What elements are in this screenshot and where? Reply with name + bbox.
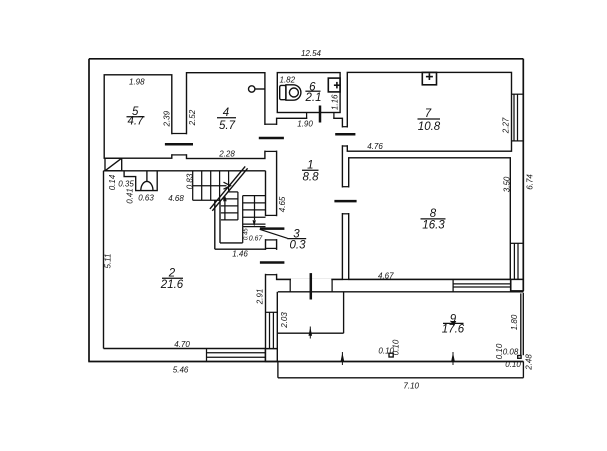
svg-text:5.46: 5.46 [173,365,189,374]
svg-text:0.63: 0.63 [138,193,154,202]
svg-text:2.52: 2.52 [188,109,197,126]
svg-text:8: 8 [430,208,437,220]
svg-text:0.67: 0.67 [249,235,264,242]
svg-text:4.70: 4.70 [174,340,190,349]
svg-text:2.03: 2.03 [280,312,289,329]
svg-text:3: 3 [293,228,300,240]
svg-text:21.6: 21.6 [160,279,184,291]
svg-text:1.46: 1.46 [232,250,248,259]
svg-text:0.83: 0.83 [186,173,195,189]
svg-text:1.82: 1.82 [280,76,296,85]
svg-text:0.08: 0.08 [503,347,519,356]
svg-text:1.80: 1.80 [510,314,519,330]
svg-text:4.67: 4.67 [378,271,394,280]
svg-text:8.8: 8.8 [303,171,320,183]
svg-text:0.14: 0.14 [108,174,117,190]
svg-text:0.10: 0.10 [505,360,521,369]
svg-text:5.11: 5.11 [104,254,113,269]
svg-text:4.68: 4.68 [168,194,184,203]
svg-text:7.10: 7.10 [403,381,419,390]
svg-text:2.28: 2.28 [218,150,235,159]
svg-text:2.1: 2.1 [305,92,322,104]
svg-text:6.74: 6.74 [525,174,534,190]
svg-text:0.35: 0.35 [118,179,134,188]
svg-text:4.65: 4.65 [278,196,287,212]
svg-text:12.54: 12.54 [301,49,322,58]
svg-text:2.27: 2.27 [502,117,511,134]
svg-text:0.10: 0.10 [495,343,504,359]
svg-text:1: 1 [307,159,313,171]
svg-text:1.16: 1.16 [331,94,340,110]
svg-text:0.45: 0.45 [243,228,249,240]
svg-text:16.3: 16.3 [422,219,445,231]
svg-text:17.6: 17.6 [442,323,465,335]
svg-text:2.91: 2.91 [256,289,265,306]
svg-text:1.90: 1.90 [297,120,313,129]
svg-text:5.7: 5.7 [219,120,236,132]
svg-text:4: 4 [223,107,229,119]
svg-text:0.3: 0.3 [290,240,307,252]
svg-text:7: 7 [425,108,432,120]
svg-text:10.8: 10.8 [418,121,441,133]
svg-text:2: 2 [168,267,176,279]
svg-text:0.41: 0.41 [126,188,135,204]
svg-text:0.10: 0.10 [391,339,400,355]
svg-text:2.48: 2.48 [525,354,534,371]
svg-text:3.50: 3.50 [503,176,512,192]
svg-text:4.76: 4.76 [367,142,383,151]
svg-text:2.39: 2.39 [163,110,172,127]
svg-text:4.7: 4.7 [128,116,145,128]
svg-text:1.98: 1.98 [129,78,145,87]
